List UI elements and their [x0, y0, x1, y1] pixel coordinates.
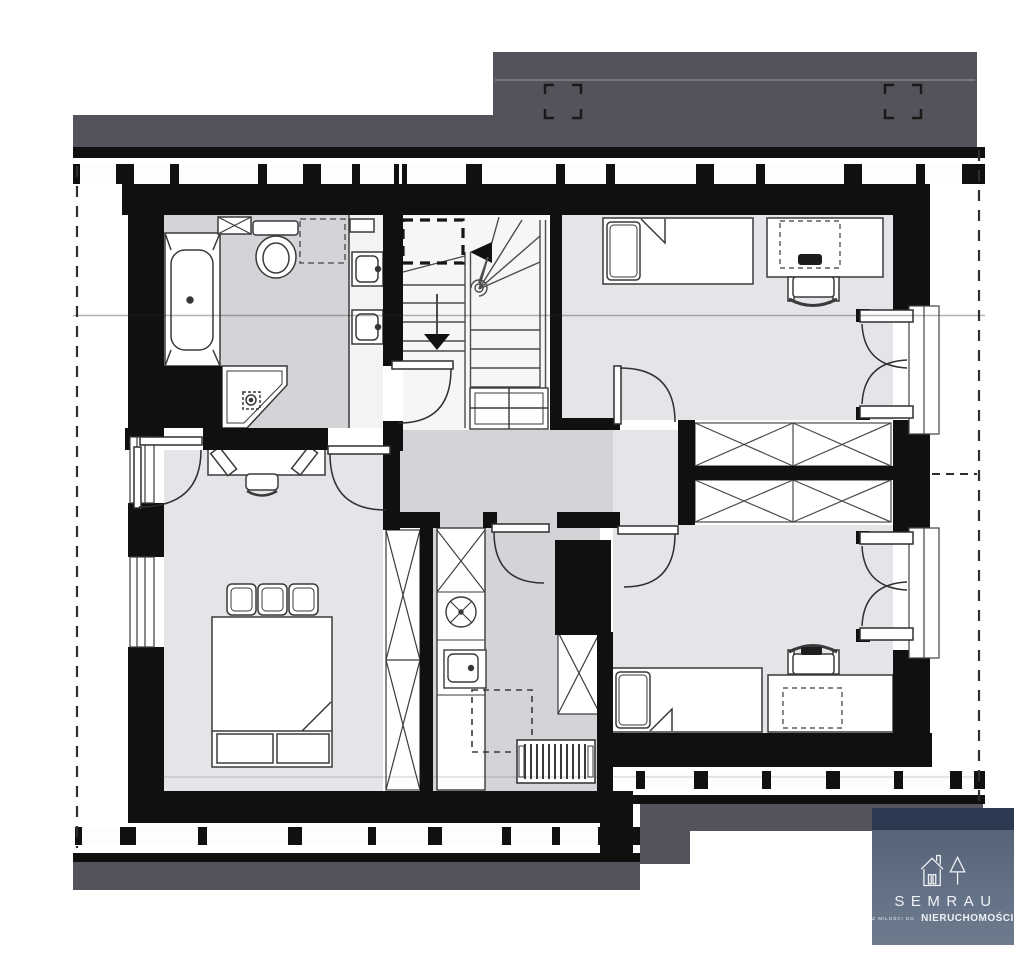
desk: [768, 675, 893, 732]
tagline-large: NIERUCHOMOŚCI: [921, 913, 1014, 924]
wall-bottom-right: [607, 733, 932, 767]
wall-utility-east: [597, 632, 613, 791]
headrest: [801, 647, 822, 655]
tagline-small: Z MIŁOŚCI DO: [872, 916, 915, 921]
single-bed: [612, 668, 762, 732]
house-and-tree-icon: [911, 851, 975, 891]
floor-plan-drawing: [0, 0, 1024, 960]
chimney-shaft: [555, 540, 611, 635]
wall-bottom-left: [128, 791, 633, 823]
wardrobe: [386, 530, 420, 790]
agency-watermark: SEMRAU Z MIŁOŚCI DO NIERUCHOMOŚCI: [872, 808, 1014, 945]
logo-panel: SEMRAU Z MIŁOŚCI DO NIERUCHOMOŚCI: [872, 830, 1014, 945]
wall-utility-west: [420, 528, 433, 791]
window-left-2: [130, 557, 154, 647]
pillows: [227, 584, 318, 615]
house-walls-icon: [924, 869, 940, 885]
wall-left-lower: [128, 647, 164, 791]
desk: [767, 218, 883, 277]
double-bed: [212, 617, 332, 767]
wardrobe: [558, 632, 600, 714]
laptop: [798, 254, 822, 265]
single-bed: [603, 218, 753, 284]
round-appliance: [446, 597, 476, 627]
desk: [208, 446, 325, 475]
sink: [444, 650, 486, 688]
wall-bathroom-stairs: [383, 184, 403, 366]
window-post-band-top: [73, 164, 985, 184]
window-post-band-bottom-left: [73, 827, 640, 845]
wall-wardrobe-divider: [695, 466, 893, 480]
wall-right-lower: [893, 650, 930, 767]
wall-bathroom-south: [203, 428, 328, 450]
under-stair-shelf: [470, 388, 548, 429]
brand-tagline: Z MIŁOŚCI DO NIERUCHOMOŚCI: [872, 911, 1014, 924]
wall-shelf-crossed: [218, 217, 251, 234]
floor-plan-scan: SEMRAU Z MIŁOŚCI DO NIERUCHOMOŚCI: [0, 0, 1024, 960]
tree-icon: [950, 857, 965, 872]
logo-header-band: [872, 808, 1014, 830]
wall-stairs-bedroom: [550, 184, 562, 430]
wall-top: [122, 184, 930, 215]
knee-wall-storage-mass: [128, 366, 222, 428]
office-chair: [788, 646, 839, 675]
bathtub: [165, 233, 220, 366]
brand-name: SEMRAU: [894, 893, 997, 910]
toilet: [253, 221, 298, 278]
figure-icon: [928, 875, 931, 884]
window-post-band-bottom-right: [633, 771, 985, 789]
figure-icon: [933, 875, 936, 884]
wall-right-upper: [893, 184, 930, 310]
washbasin-1: [352, 252, 383, 286]
